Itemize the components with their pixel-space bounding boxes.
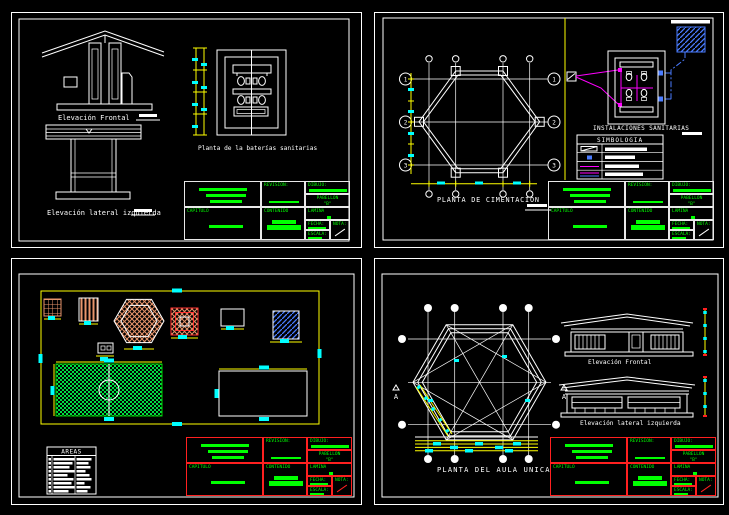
title-block: CAPITULO REVISION: CONTENIDO DIBUJO: PAB… xyxy=(548,181,714,240)
lamina-cell: LAMINA xyxy=(307,463,352,476)
dimension-strip-vertical xyxy=(192,48,207,135)
elevacion-lateral-drawing xyxy=(559,376,707,417)
sheet-aula: A A xyxy=(374,258,724,505)
contenido-label: CONTENIDO xyxy=(628,464,670,470)
water-tank xyxy=(677,27,705,52)
contenido-cell: CONTENIDO xyxy=(625,207,669,240)
lamina-label: LAMINA xyxy=(308,464,351,470)
revision-cell: REVISION: xyxy=(625,181,669,207)
nota-label: NOTA: xyxy=(331,221,349,227)
contenido-cell: CONTENIDO xyxy=(261,207,305,240)
elevacion-frontal-label: Elevación Frontal xyxy=(58,114,130,122)
revision-label: REVISION: xyxy=(626,182,668,188)
fecha-cell: FECHA: xyxy=(307,476,332,486)
project-name-cell xyxy=(548,181,625,207)
capitulo-cell: CAPITULO xyxy=(184,207,261,240)
simbologia-table: SIMBOLOGIA xyxy=(577,135,663,179)
building-concentric xyxy=(171,308,198,339)
section-label-a: A xyxy=(394,393,399,401)
revision-cell: REVISION: xyxy=(627,437,671,463)
pabellon-cell: PABELLON "B" xyxy=(305,194,350,207)
contenido-label: CONTENIDO xyxy=(626,208,668,214)
areas-title: AREAS xyxy=(61,449,82,456)
planta-baterias-label: Planta de la baterías sanitarias xyxy=(198,144,317,152)
project-name-cell xyxy=(550,437,627,463)
contenido-cell: CONTENIDO xyxy=(627,463,671,496)
nota-diagonal xyxy=(701,485,712,493)
escala-cell: ESCALA: xyxy=(305,230,330,240)
nota-cell: NOTA: xyxy=(696,476,716,496)
height-dimension-strip xyxy=(703,376,707,417)
capitulo-label: CAPITULO xyxy=(187,464,262,470)
contenido-cell: CONTENIDO xyxy=(263,463,307,496)
escala-cell: ESCALA: xyxy=(307,486,332,496)
revision-label: REVISION: xyxy=(628,438,670,444)
planta-cimentacion-drawing: 1 1 2 2 3 3 xyxy=(400,56,561,198)
scale-bar xyxy=(682,132,702,135)
grid-label-1: 1 xyxy=(552,76,556,83)
revision-label: REVISION: xyxy=(262,182,304,188)
grid-label-1: 1 xyxy=(404,76,408,83)
sheet-site-plan: AREAS xyxy=(11,258,362,505)
grid-label-2: 2 xyxy=(552,119,556,126)
capitulo-cell: CAPITULO xyxy=(550,463,627,496)
dibujo-cell: DIBUJO: xyxy=(307,437,352,450)
instalaciones-sanitarias-drawing xyxy=(567,20,710,124)
scale-bar xyxy=(136,114,160,120)
fecha-cell: FECHA: xyxy=(305,220,330,230)
lamina-cell: LAMINA xyxy=(669,207,714,220)
nota-cell: NOTA: xyxy=(694,220,714,240)
building-blue-hatch xyxy=(270,311,302,343)
dibujo-label: DIBUJO: xyxy=(672,438,715,444)
revision-label: REVISION: xyxy=(264,438,306,444)
project-name-cell xyxy=(186,437,263,463)
grid-label-3: 3 xyxy=(404,162,408,169)
elevacion-frontal-drawing xyxy=(42,31,164,110)
nota-label: NOTA: xyxy=(697,477,715,483)
sheet-cimentacion: 1 1 2 2 3 3 xyxy=(374,12,724,248)
title-block: CAPITULO REVISION: CONTENIDO DIBUJO: PAB… xyxy=(550,437,716,496)
dibujo-cell: DIBUJO: xyxy=(671,437,716,450)
valve-symbol xyxy=(567,72,576,81)
building-striped xyxy=(79,298,98,325)
pabellon-cell: PABELLON "B" xyxy=(671,450,716,463)
nota-label: NOTA: xyxy=(333,477,351,483)
sports-field xyxy=(51,359,163,422)
dibujo-cell: DIBUJO: xyxy=(669,181,714,194)
revision-cell: REVISION: xyxy=(261,181,305,207)
lamina-label: LAMINA xyxy=(672,464,715,470)
dibujo-label: DIBUJO: xyxy=(306,182,349,188)
bottom-dimension-strip xyxy=(415,437,538,453)
building-grid-hatch xyxy=(44,299,61,320)
title-block: CAPITULO REVISION: CONTENIDO DIBUJO: PAB… xyxy=(186,437,352,496)
capitulo-label: CAPITULO xyxy=(549,208,624,214)
contenido-label: CONTENIDO xyxy=(264,464,306,470)
contenido-label: CONTENIDO xyxy=(262,208,304,214)
height-dimension-strip xyxy=(703,308,707,356)
building-hexagonal xyxy=(114,299,164,350)
grid-label-2: 2 xyxy=(404,119,408,126)
nota-diagonal xyxy=(335,229,346,237)
pabellon-cell: PABELLON "B" xyxy=(307,450,352,463)
nota-cell: NOTA: xyxy=(332,476,352,496)
section-marker-left: A xyxy=(393,385,399,401)
planta-baterias-drawing xyxy=(217,50,286,135)
planta-cimentacion-label: PLANTA DE CIMENTACION xyxy=(437,196,540,204)
elevacion-lateral-label: Elevación lateral izquierda xyxy=(580,419,681,427)
cad-drawing-set: Elevación Frontal Elevación lateral izqu… xyxy=(0,0,729,515)
fecha-cell: FECHA: xyxy=(671,476,696,486)
areas-rows xyxy=(49,458,92,493)
escala-cell: ESCALA: xyxy=(671,486,696,496)
instalaciones-label: INSTALACIONES SANITARIAS xyxy=(593,125,689,132)
areas-table: AREAS xyxy=(47,447,96,494)
fecha-cell: FECHA: xyxy=(669,220,694,230)
project-name-cell xyxy=(184,181,261,207)
planta-aula-label: PLANTA DEL AULA UNICA xyxy=(437,466,551,474)
pabellon-cell: PABELLON "B" xyxy=(669,194,714,207)
lamina-label: LAMINA xyxy=(306,208,349,214)
nota-cell: NOTA: xyxy=(330,220,350,240)
simbologia-title: SIMBOLOGIA xyxy=(597,137,643,144)
planta-aula-drawing: A A xyxy=(393,304,567,463)
court-rectangle xyxy=(215,366,308,422)
site-plan-drawing xyxy=(39,289,322,427)
elevacion-frontal-drawing xyxy=(561,308,707,356)
nota-diagonal xyxy=(699,229,710,237)
nota-label: NOTA: xyxy=(695,221,713,227)
escala-cell: ESCALA: xyxy=(669,230,694,240)
capitulo-label: CAPITULO xyxy=(185,208,260,214)
dibujo-label: DIBUJO: xyxy=(670,182,713,188)
nota-diagonal xyxy=(337,485,348,493)
bench-object xyxy=(96,343,114,361)
title-block: CAPITULO REVISION: CONTENIDO DIBUJO: PAB… xyxy=(184,181,350,240)
building-plain xyxy=(221,309,244,330)
revision-cell: REVISION: xyxy=(263,437,307,463)
lamina-label: LAMINA xyxy=(670,208,713,214)
capitulo-cell: CAPITULO xyxy=(548,207,625,240)
lamina-cell: LAMINA xyxy=(305,207,350,220)
capitulo-cell: CAPITULO xyxy=(186,463,263,496)
capitulo-label: CAPITULO xyxy=(551,464,626,470)
dibujo-cell: DIBUJO: xyxy=(305,181,350,194)
grid-label-3: 3 xyxy=(552,162,556,169)
sheet-sanitary-elevations: Elevación Frontal Elevación lateral izqu… xyxy=(11,12,362,248)
dimension-lines xyxy=(408,73,537,187)
lamina-cell: LAMINA xyxy=(671,463,716,476)
elevacion-frontal-label: Elevación Frontal xyxy=(588,358,652,366)
elevacion-lateral-drawing xyxy=(46,125,141,199)
dibujo-label: DIBUJO: xyxy=(308,438,351,444)
